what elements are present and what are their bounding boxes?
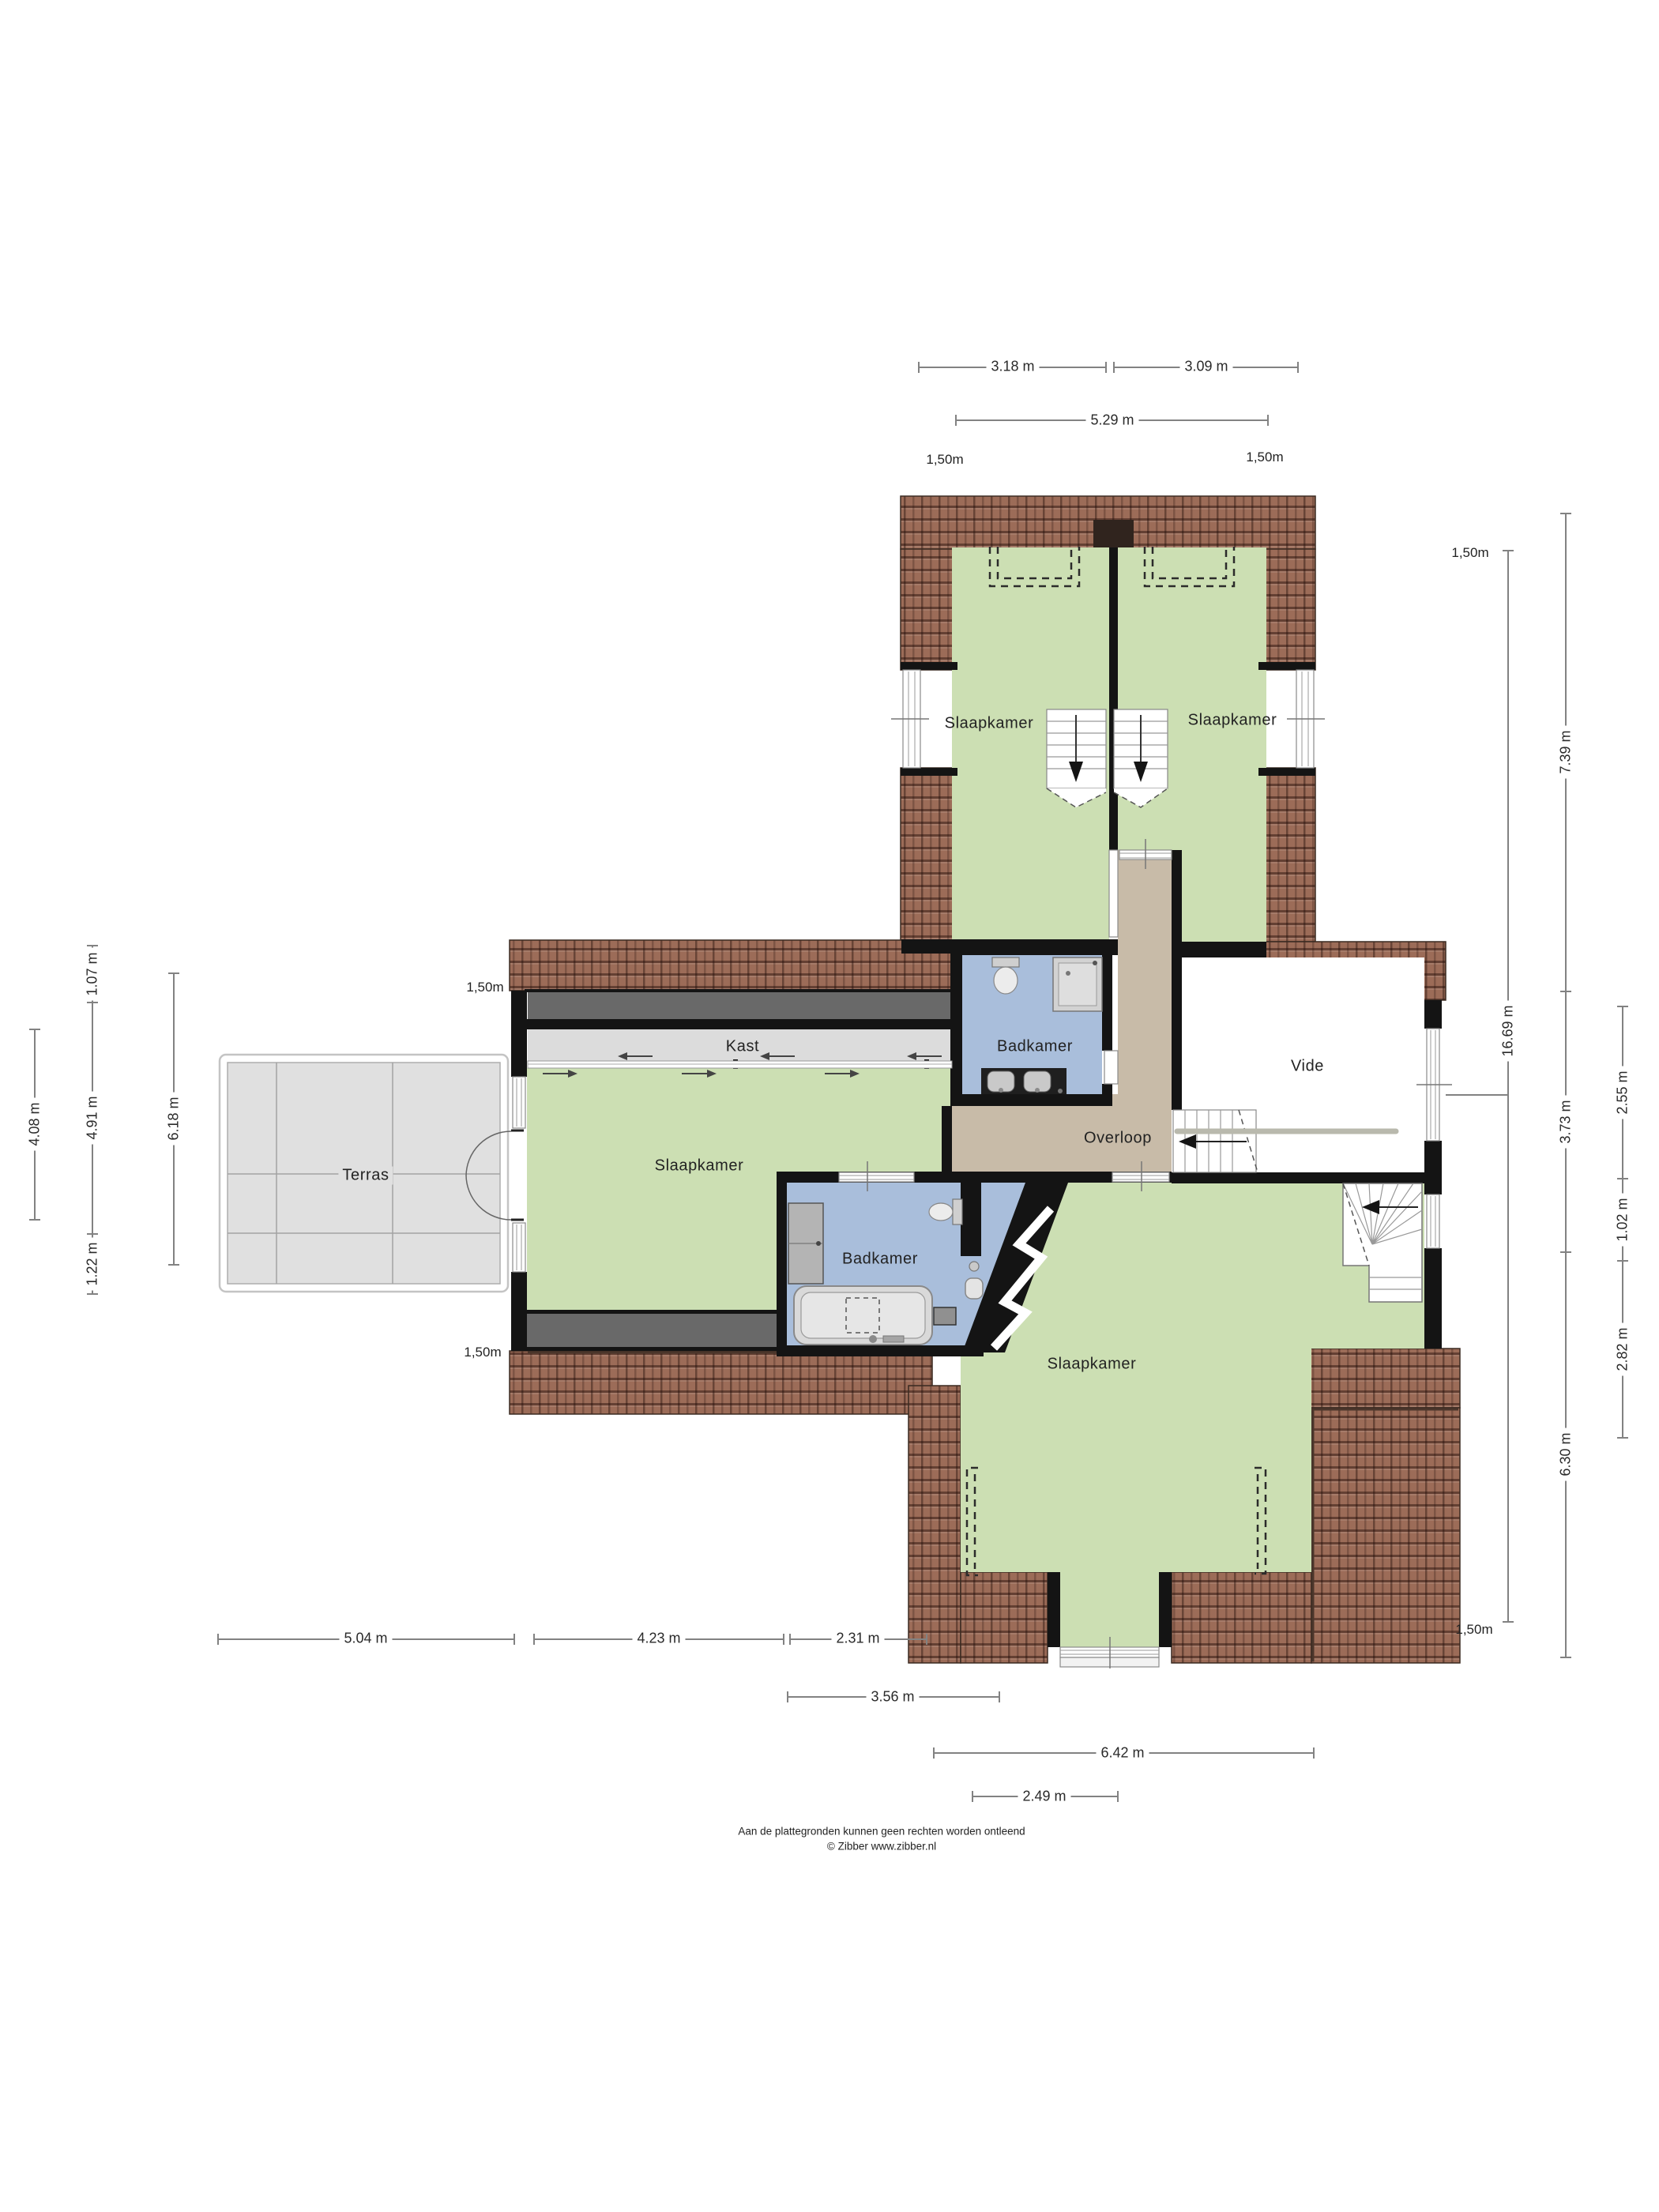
- shower-drain: [1066, 971, 1070, 976]
- toilet-bowl: [994, 967, 1018, 994]
- toilet-tank: [953, 1199, 962, 1224]
- toilet-tank: [992, 957, 1019, 967]
- stairs-overloop: [1173, 1110, 1258, 1172]
- bath-faucet: [869, 1335, 877, 1343]
- terras-deck: [220, 1055, 508, 1292]
- toilet-bowl: [929, 1203, 953, 1221]
- floorplan-page: Slaapkamer Slaapkamer Slaapkamer Slaapka…: [0, 0, 1659, 2212]
- sink: [965, 1278, 983, 1299]
- duct: [934, 1307, 956, 1325]
- floorplan-drawing: [0, 0, 1659, 2212]
